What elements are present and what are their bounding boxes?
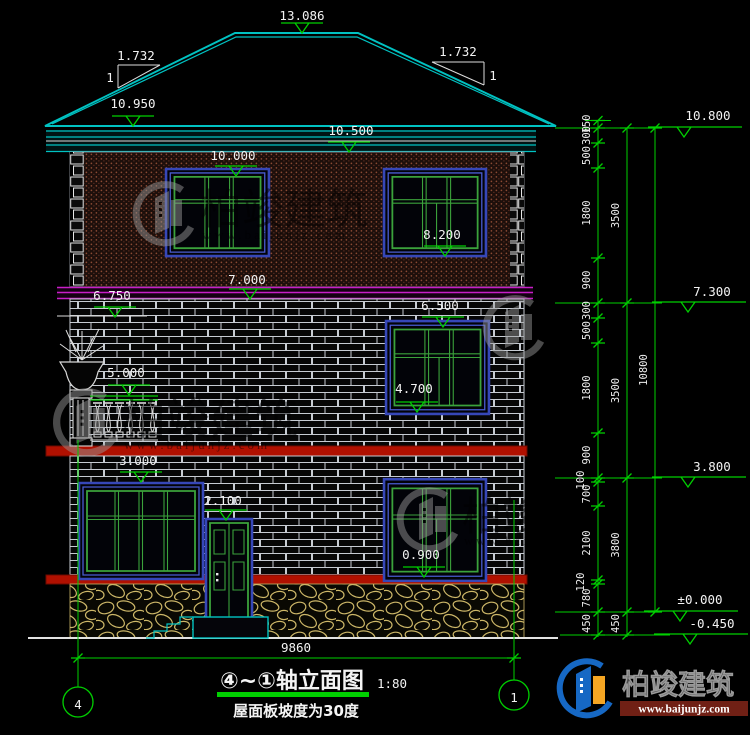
- cad-elevation-drawing: 柏竣建筑 www.baijunjz.com 柏竣建筑 www.baijunjz.…: [0, 0, 750, 735]
- slope-triangle-right-shape: [432, 62, 484, 85]
- dim-10800: 10800: [638, 354, 650, 386]
- axis-1-label: 1: [510, 690, 518, 705]
- dim-900: 900: [581, 446, 593, 465]
- eave-cornice: [46, 130, 536, 152]
- entry-door: [206, 519, 252, 623]
- dim-segment-labels: 150 300 500 1800 900 300 500 1800 900 10…: [575, 115, 593, 633]
- slope-run-right-label: 1.732: [439, 44, 477, 59]
- window-f2-right: [386, 321, 489, 414]
- elev-3800: 3.800: [693, 459, 731, 474]
- dim-500: 500: [581, 146, 593, 165]
- balcony-rail-label: 5.000: [107, 365, 145, 380]
- elev-7300: 7.300: [693, 284, 731, 299]
- f3-window-sill-label: 8.200: [423, 227, 461, 242]
- roof-outline: [45, 33, 556, 126]
- band-bottom-label: 6.750: [93, 288, 131, 303]
- roof-slope-note: 屋面板坡度为30度: [233, 702, 360, 720]
- window-f3-right: [384, 169, 486, 256]
- dim-700: 700: [581, 485, 593, 504]
- dim-group-labels: 3500 3500 3800 450 10800: [610, 203, 650, 633]
- ridge-level-label: 13.086: [279, 8, 324, 23]
- watermark-url: www.baijunjz.com: [202, 227, 348, 242]
- slope-rise-left-label: 1: [106, 70, 114, 85]
- dim-450: 450: [581, 614, 593, 633]
- dim-3500-upper: 3500: [610, 203, 622, 228]
- brand-logo-icon: [560, 661, 610, 715]
- f3-window-head-label: 10.000: [210, 148, 255, 163]
- elev-0000: ±0.000: [677, 592, 722, 607]
- level-symbol: [112, 116, 154, 126]
- band-top-label: 7.000: [228, 272, 266, 287]
- eave-top-label: 10.950: [110, 96, 155, 111]
- quoin-left: [70, 152, 84, 287]
- foundation-stone: [70, 584, 524, 638]
- dim-1800: 1800: [581, 375, 593, 400]
- elev-10800: 10.800: [685, 108, 730, 123]
- quoin-right: [510, 152, 524, 287]
- dim-780: 780: [581, 589, 593, 608]
- dimension-chain: 150 300 500 1800 900 300 500 1800 900 10…: [555, 108, 748, 644]
- f2-window-sill-label: 4.700: [395, 381, 433, 396]
- drawing-canvas: 柏竣建筑 www.baijunjz.com 柏竣建筑 www.baijunjz.…: [0, 0, 750, 735]
- drawing-title: ④~①轴立面图: [220, 668, 364, 694]
- f2-window-head-label: 6.500: [421, 298, 459, 313]
- step-platform: [193, 617, 268, 638]
- overall-width-label: 9860: [281, 640, 311, 655]
- door-head-label: 2.100: [204, 493, 242, 508]
- dim-300: 300: [581, 126, 593, 145]
- red-band-1: [46, 446, 527, 456]
- watermark-url: www.baijunjz.com: [124, 437, 270, 452]
- window-f1-left: [79, 483, 203, 579]
- dim-3500-lower: 3500: [610, 378, 622, 403]
- dim-900: 900: [581, 271, 593, 290]
- brand-logo: 柏竣建筑 www.baijunjz.com: [560, 661, 748, 716]
- dim-500: 500: [581, 321, 593, 340]
- slope-run-left-label: 1.732: [117, 48, 155, 63]
- level-symbol: [281, 23, 323, 33]
- brand-url-text: www.baijunjz.com: [638, 704, 730, 716]
- level-symbol: [648, 127, 742, 137]
- roof: [45, 33, 556, 126]
- axis-4-label: 4: [74, 697, 82, 712]
- dim-300: 300: [581, 301, 593, 320]
- dim-3800: 3800: [610, 532, 622, 557]
- level-symbol: [652, 477, 746, 487]
- slope-triangle-right: 1.732 1: [432, 44, 497, 85]
- f1-window-head-label: 3.000: [119, 453, 157, 468]
- title-underline: [217, 692, 369, 697]
- dim-1800: 1800: [581, 200, 593, 225]
- red-band-upper: [46, 446, 527, 456]
- slope-rise-right-label: 1: [489, 68, 497, 83]
- f1-window-sill-label: 0.900: [402, 547, 440, 562]
- brand-logo-text: 柏竣建筑: [622, 668, 734, 701]
- drawing-scale: 1:80: [377, 676, 407, 691]
- right-elevation-markers: 10.800 7.300 3.800 ±0.000 -0.450: [644, 108, 748, 644]
- eave-level-label: 10.500: [328, 123, 373, 138]
- elev-neg0450: -0.450: [689, 616, 734, 631]
- dim-2100: 2100: [581, 530, 593, 555]
- dim-450: 450: [610, 614, 622, 633]
